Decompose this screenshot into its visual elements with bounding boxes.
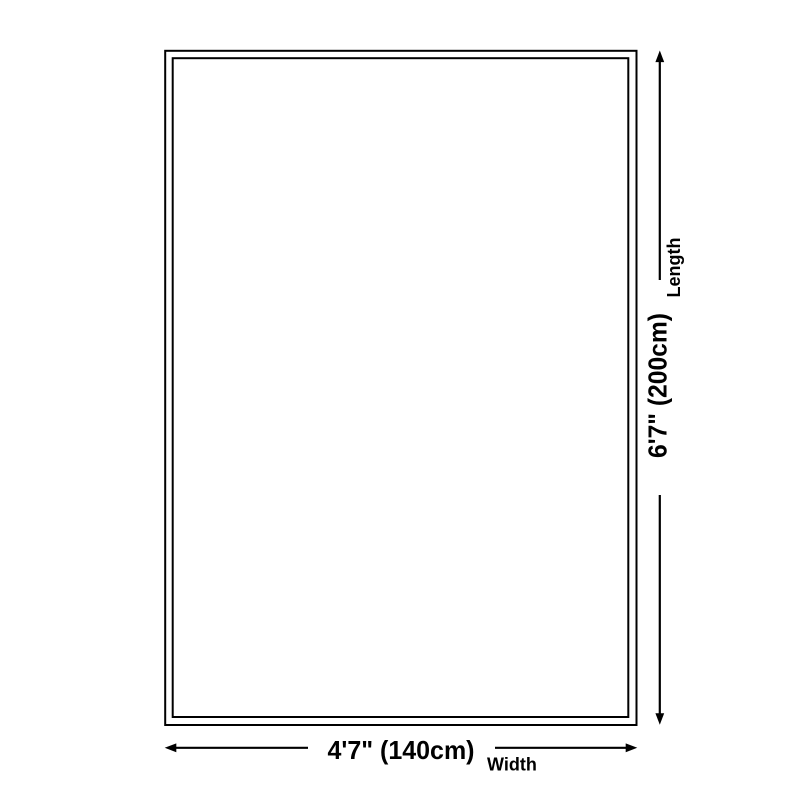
svg-text:6'7" (200cm): 6'7" (200cm) — [643, 313, 673, 458]
svg-text:Length: Length — [664, 238, 684, 298]
svg-text:Width: Width — [487, 754, 537, 774]
svg-text:4'7" (140cm): 4'7" (140cm) — [328, 735, 475, 765]
